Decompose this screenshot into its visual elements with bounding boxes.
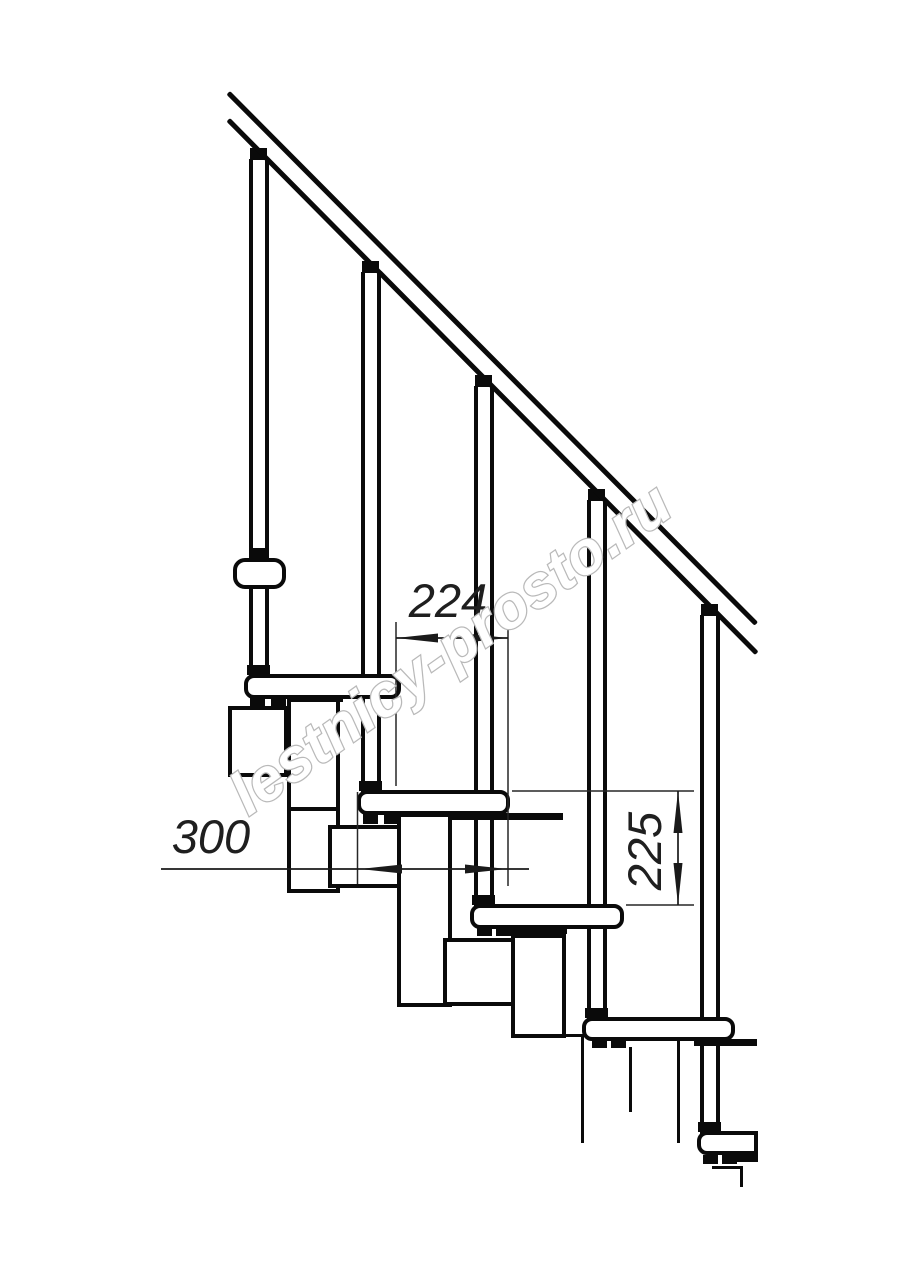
watermark-text: lestnicy-prosto.ru [217,469,684,828]
dimension-step-rise-label: 225 [618,811,671,891]
dimension-overlay: 224 300 225 lestnicy-prosto.ru [0,0,914,1280]
dimension-tread-length-label: 300 [172,810,250,863]
staircase-drawing: 224 300 225 lestnicy-prosto.ru [0,0,914,1280]
